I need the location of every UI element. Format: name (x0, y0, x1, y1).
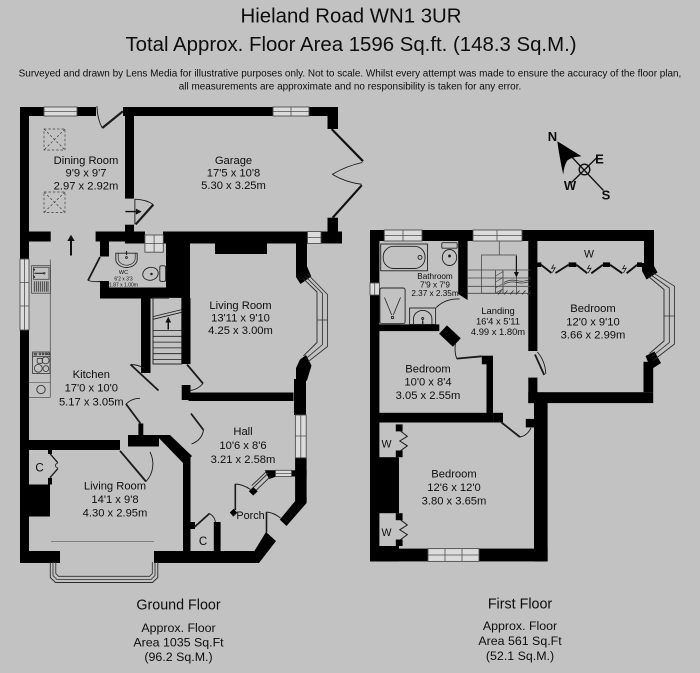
svg-text:12'6 x 12'0: 12'6 x 12'0 (427, 482, 480, 494)
svg-text:Porch: Porch (236, 510, 264, 522)
svg-text:Bedroom: Bedroom (405, 363, 450, 375)
svg-text:17'0 x 10'0: 17'0 x 10'0 (65, 383, 118, 395)
svg-text:Bedroom: Bedroom (570, 303, 615, 315)
svg-text:Area 1035 Sq.Ft: Area 1035 Sq.Ft (133, 636, 224, 650)
svg-text:14'1 x 9'8: 14'1 x 9'8 (91, 494, 138, 506)
svg-text:Kitchen: Kitchen (73, 369, 110, 381)
svg-text:4.30 x 2.95m: 4.30 x 2.95m (83, 507, 148, 519)
svg-text:N: N (548, 129, 557, 144)
svg-text:3.05 x 2.55m: 3.05 x 2.55m (396, 390, 461, 402)
svg-text:Surveyed and drawn by Lens Med: Surveyed and drawn by Lens Media for ill… (19, 68, 682, 79)
svg-text:2.97 x 2.92m: 2.97 x 2.92m (54, 180, 119, 192)
svg-text:S: S (602, 188, 611, 203)
svg-text:W: W (584, 249, 594, 261)
svg-text:Landing: Landing (481, 305, 514, 316)
svg-text:13'11 x 9'10: 13'11 x 9'10 (211, 312, 270, 324)
svg-text:10'0 x 8'4: 10'0 x 8'4 (404, 376, 451, 388)
svg-text:Living Room: Living Room (84, 480, 146, 492)
svg-text:Dining Room: Dining Room (54, 155, 119, 167)
svg-text:(96.2 Sq.M.): (96.2 Sq.M.) (144, 650, 212, 664)
svg-text:Area 561 Sq.Ft: Area 561 Sq.Ft (478, 634, 562, 648)
svg-text:Bedroom: Bedroom (431, 468, 476, 480)
svg-text:2.37 x 2.35m: 2.37 x 2.35m (411, 289, 459, 298)
svg-text:10'6 x 8'6: 10'6 x 8'6 (219, 440, 266, 452)
svg-text:W: W (564, 178, 577, 193)
svg-text:E: E (595, 152, 604, 167)
svg-text:First Floor: First Floor (488, 597, 553, 613)
svg-text:17'5 x 10'8: 17'5 x 10'8 (207, 168, 260, 180)
svg-text:12'0 x 9'10: 12'0 x 9'10 (566, 316, 619, 328)
svg-text:3.21 x 2.58m: 3.21 x 2.58m (211, 454, 276, 466)
svg-text:WC: WC (119, 270, 128, 276)
svg-text:Hieland Road WN1 3UR: Hieland Road WN1 3UR (241, 6, 462, 28)
svg-text:W: W (382, 527, 392, 539)
svg-text:9'9 x 9'7: 9'9 x 9'7 (66, 168, 107, 180)
svg-text:3.66 x 2.99m: 3.66 x 2.99m (561, 329, 626, 341)
svg-text:Approx. Floor: Approx. Floor (483, 619, 557, 633)
svg-text:W: W (382, 439, 392, 451)
svg-text:Hall: Hall (233, 426, 252, 438)
svg-text:(52.1 Sq.M.): (52.1 Sq.M.) (486, 649, 554, 663)
svg-text:5.17 x 3.05m: 5.17 x 3.05m (59, 396, 124, 408)
svg-text:Approx. Floor: Approx. Floor (141, 621, 215, 635)
svg-text:C: C (199, 536, 207, 548)
svg-text:3.80 x 3.65m: 3.80 x 3.65m (422, 495, 487, 507)
svg-text:Living Room: Living Room (209, 300, 271, 312)
svg-text:Garage: Garage (215, 155, 252, 167)
svg-text:5.30 x 3.25m: 5.30 x 3.25m (201, 180, 266, 192)
svg-text:Ground Floor: Ground Floor (136, 598, 220, 614)
svg-text:all measurements are approxima: all measurements are approximate and no … (179, 81, 521, 92)
svg-text:C: C (35, 463, 43, 475)
svg-text:1.87 x 1.00m: 1.87 x 1.00m (109, 283, 138, 289)
svg-text:Total Approx. Floor Area 1596: Total Approx. Floor Area 1596 Sq.ft. (14… (125, 34, 576, 56)
svg-text:4.25 x 3.00m: 4.25 x 3.00m (208, 325, 273, 337)
svg-text:4.99 x 1.80m: 4.99 x 1.80m (471, 326, 525, 337)
